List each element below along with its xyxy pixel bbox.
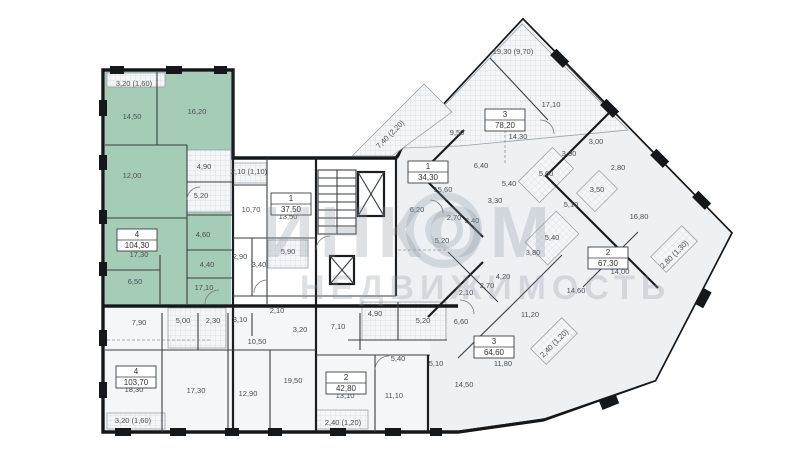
room-area-label: 19,30 (9,70): [493, 47, 534, 56]
apartment-total-area: 42,80: [336, 384, 357, 393]
apartment-info-box: 267,30: [588, 247, 628, 269]
apartment-info-box: 134,30: [408, 161, 448, 183]
room-area-label: 3,90: [562, 149, 577, 158]
room-area-label: 7,90: [132, 318, 147, 327]
bathroom-hatch: [168, 308, 226, 348]
room-area-label: 12,00: [123, 171, 142, 180]
room-area-label: 16,20: [188, 107, 207, 116]
apartment-info-box: 242,80: [326, 372, 366, 394]
room-area-label: 9,50: [450, 128, 465, 137]
room-area-label: 5,10: [429, 359, 444, 368]
room-area-label: 14,50: [123, 112, 142, 121]
apartment-total-area: 103,70: [124, 378, 149, 387]
room-area-label: 3,50: [590, 185, 605, 194]
room-area-label: 17,10: [542, 100, 561, 109]
room-area-label: 16,80: [630, 212, 649, 221]
room-area-label: 7,10: [331, 322, 346, 331]
room-area-label: 5,00: [176, 316, 191, 325]
room-area-label: 4,60: [196, 230, 211, 239]
apartment-info-box: 364,60: [474, 336, 514, 358]
apartment-rooms-count: 2: [606, 248, 611, 257]
apartment-info-box: 378,20: [485, 109, 525, 131]
apartment-total-area: 64,60: [484, 348, 505, 357]
room-area-label: 2,10 (1,10): [231, 167, 268, 176]
room-area-label: 6,50: [128, 277, 143, 286]
apartment-info-box: 4103,70: [116, 366, 156, 388]
room-area-label: 5,60: [539, 169, 554, 178]
room-area-label: 6,40: [474, 161, 489, 170]
room-area-label: 3,20 (1,60): [115, 416, 152, 425]
room-area-label: 2,10: [270, 306, 285, 315]
bathroom-hatch: [187, 150, 231, 212]
watermark-subtitle: НЕДВИЖИМОСТЬ: [300, 269, 671, 307]
room-area-label: 2,90: [233, 252, 248, 261]
room-area-label: 14,50: [455, 380, 474, 389]
room-area-label: 11,10: [385, 391, 403, 400]
room-area-label: 2,40 (1,20): [325, 418, 362, 427]
room-area-label: 5,20: [194, 191, 209, 200]
room-area-label: 10,70: [242, 205, 261, 214]
room-area-label: 2,30: [206, 316, 221, 325]
room-area-label: 3,20: [293, 325, 308, 334]
apartment-rooms-count: 3: [492, 337, 497, 346]
room-area-label: 5,20: [416, 316, 431, 325]
apartment-rooms-count: 1: [426, 162, 431, 171]
room-area-label: 10,50: [248, 337, 267, 346]
room-area-label: 4,90: [197, 162, 212, 171]
room-area-label: 14,30: [509, 132, 528, 141]
room-area-label: 17,10: [195, 283, 214, 292]
room-area-label: 4,90: [368, 309, 383, 318]
apartment-rooms-count: 4: [134, 367, 139, 376]
apartment-total-area: 34,30: [418, 173, 439, 182]
room-area-label: 5,40: [502, 179, 517, 188]
room-area-label: 2,80: [611, 163, 626, 172]
apartment-rooms-count: 2: [344, 373, 349, 382]
room-area-label: 11,20: [521, 310, 539, 319]
room-area-label: 19,50: [284, 376, 303, 385]
room-area-label: 4,40: [200, 260, 215, 269]
room-area-label: 5,10: [564, 200, 579, 209]
room-area-label: 3,10: [233, 315, 248, 324]
bathroom-hatch: [362, 302, 446, 340]
room-area-label: 3,00: [589, 137, 604, 146]
apartment-total-area: 104,30: [125, 241, 150, 250]
room-area-label: 6,60: [454, 317, 469, 326]
floor-plan: 3,20 (1,60)14,5016,2012,004,905,204,604,…: [0, 0, 800, 450]
room-area-label: 3,20 (1,60): [116, 79, 153, 88]
apartment-total-area: 67,30: [598, 259, 619, 268]
apartment-rooms-count: 4: [135, 230, 140, 239]
room-area-label: 17,30: [187, 386, 206, 395]
room-area-label: 5,40: [391, 354, 406, 363]
apartment-info-box: 4104,30: [117, 229, 157, 251]
room-area-label: 11,80: [494, 359, 512, 368]
apartment-rooms-count: 3: [503, 110, 508, 119]
room-area-label: 12,90: [239, 389, 258, 398]
apartment-total-area: 78,20: [495, 121, 516, 130]
